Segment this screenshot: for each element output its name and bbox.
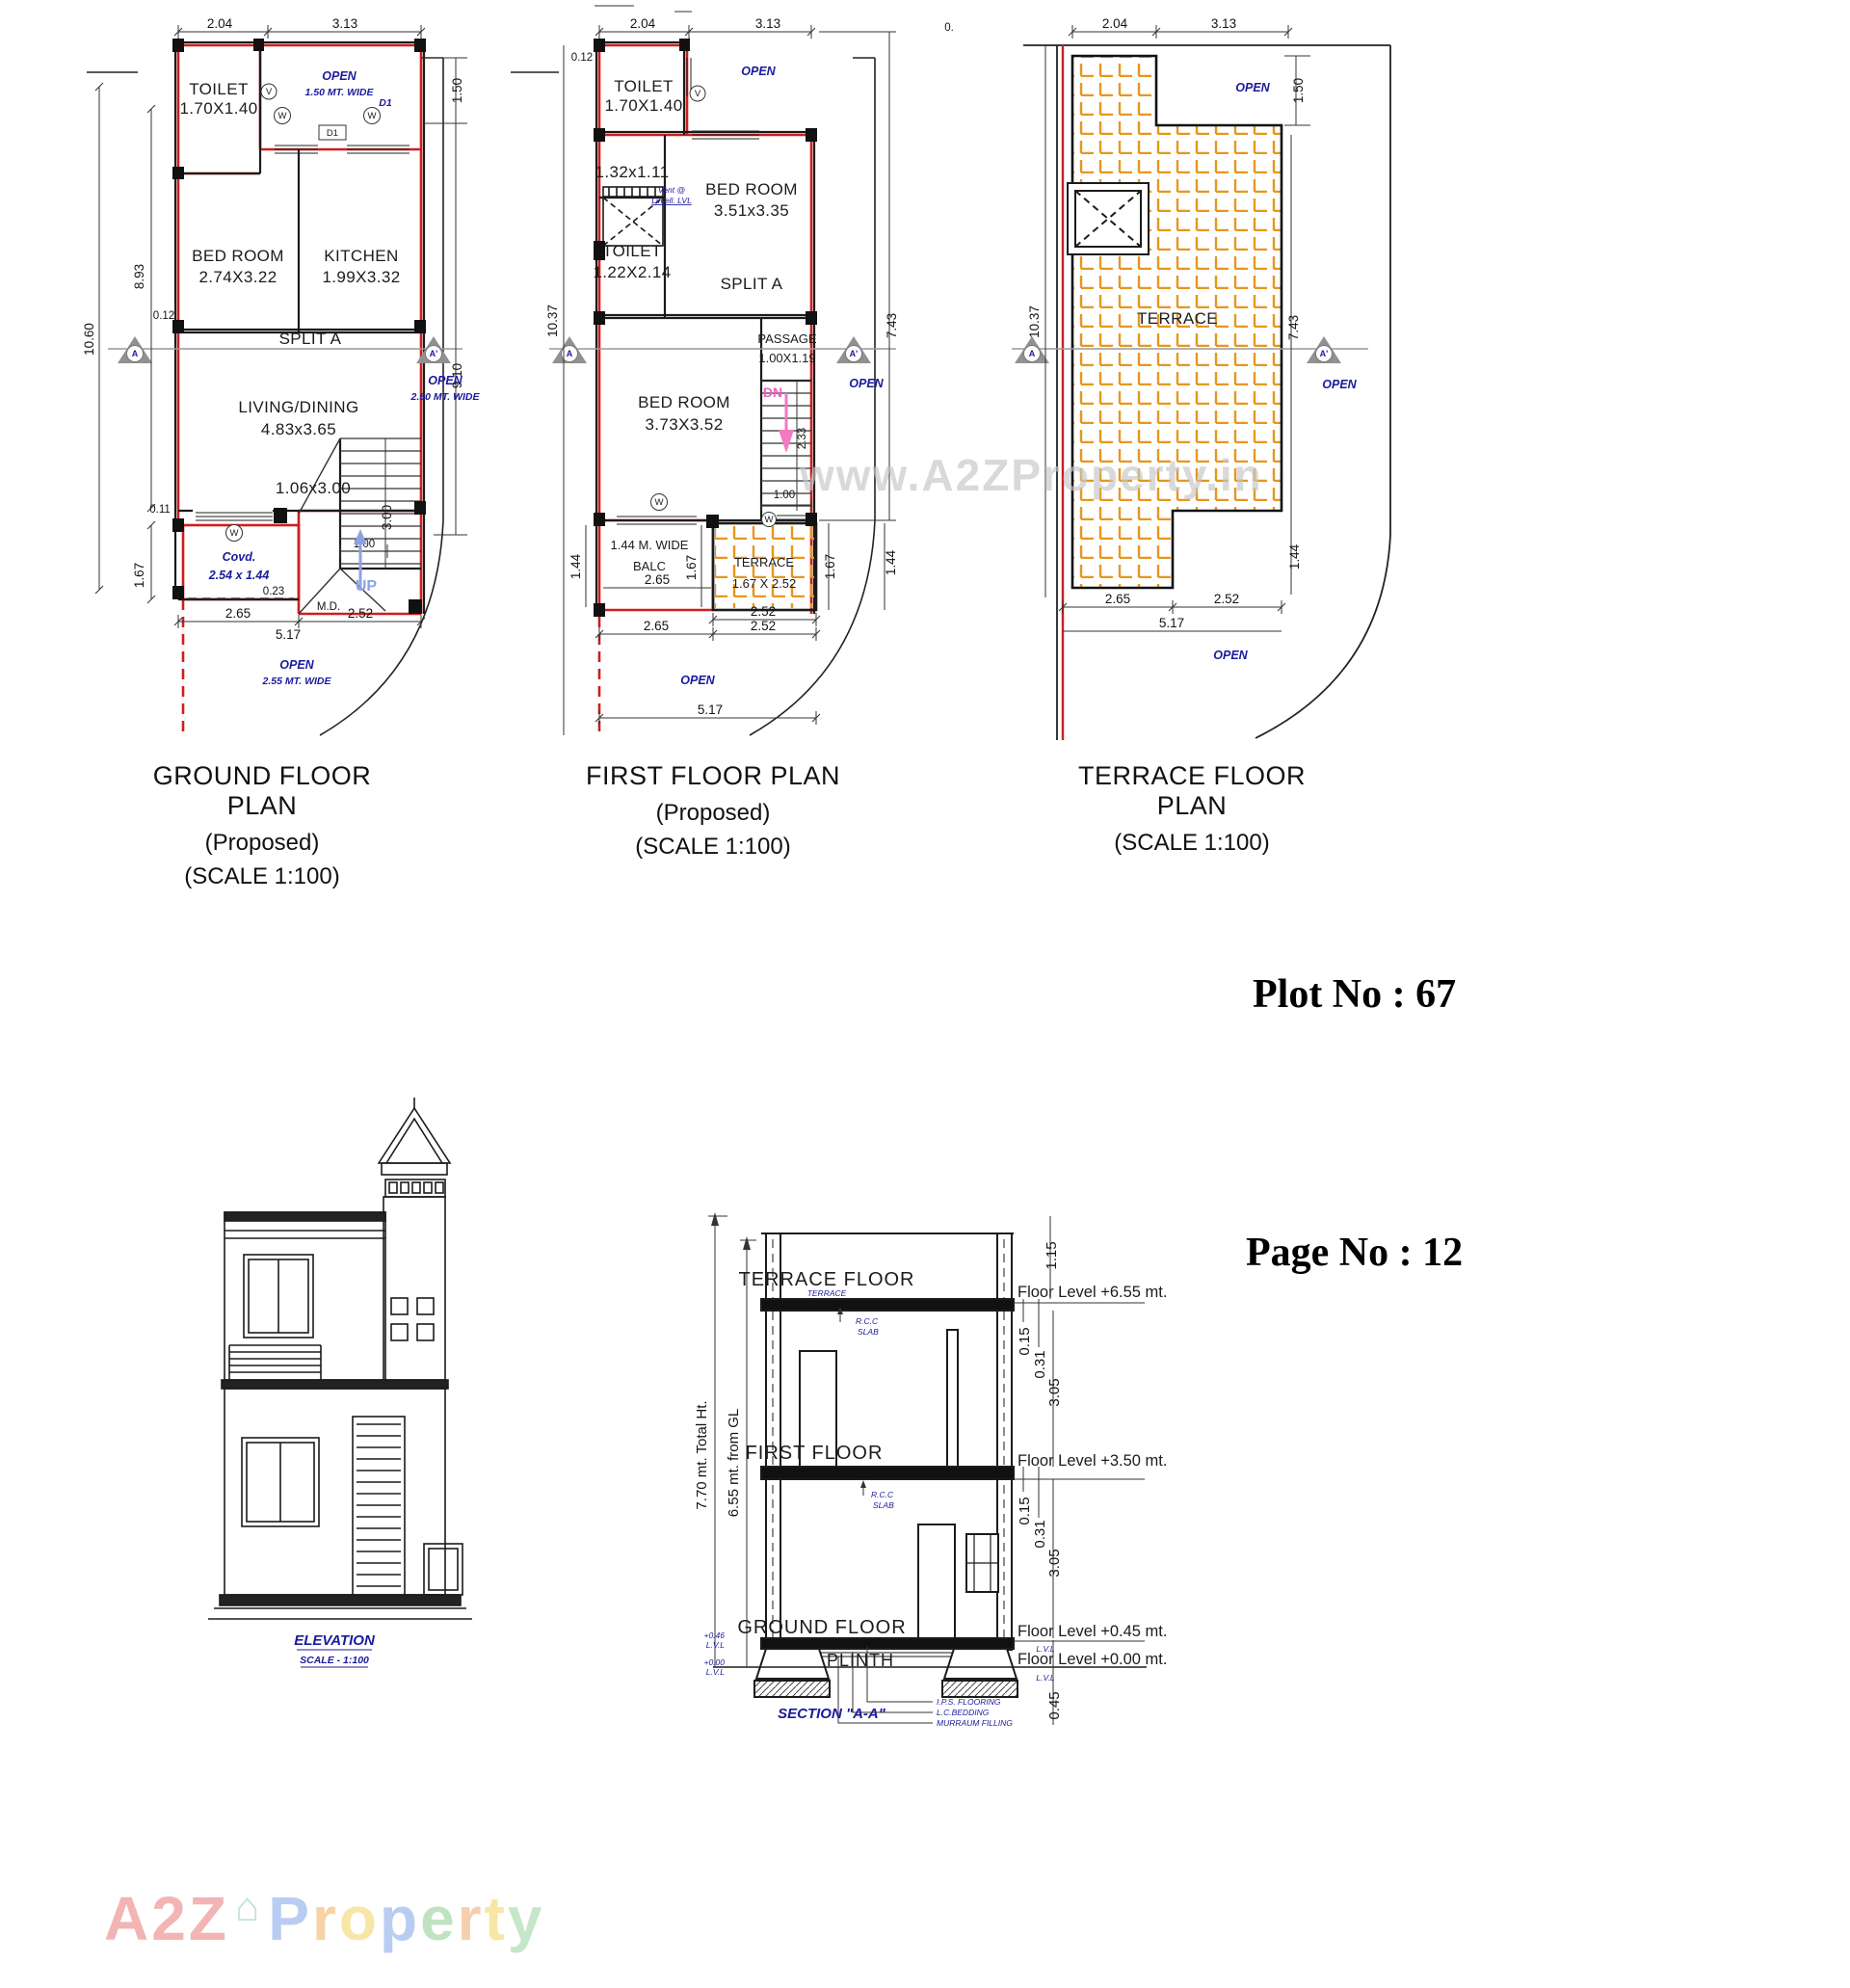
marker-label: A'	[1320, 349, 1329, 358]
level-label: Floor Level +6.55 mt.	[1017, 1284, 1167, 1301]
window-mark: W	[368, 111, 377, 121]
room-size: 3.73X3.52	[645, 415, 723, 434]
open-label: OPEN	[680, 674, 715, 687]
room-label: BED ROOM	[192, 247, 284, 265]
open-label: OPEN	[428, 374, 462, 387]
dim-label: 10.60	[82, 323, 96, 356]
room-size: 3.51x3.35	[714, 201, 789, 220]
fixture-marks: V W W W D1	[226, 84, 381, 542]
dim-label: 0.31	[1032, 1350, 1048, 1378]
note-label: SLAB	[858, 1327, 879, 1337]
dim-label: 1.67	[684, 555, 699, 580]
terrace-floor-title-block: TERRACE FLOOR PLAN (SCALE 1:100)	[1052, 761, 1332, 857]
open-label: 1.50 MT. WIDE	[305, 87, 375, 98]
dim-label: 0.45	[1046, 1691, 1063, 1719]
brand-letter: e	[420, 1884, 458, 1953]
note-label: MURRAUM FILLING	[937, 1718, 1013, 1728]
dim-label: 3.00	[380, 505, 394, 530]
open-label: OPEN	[1235, 81, 1270, 94]
dim-label: 5.17	[1159, 616, 1184, 630]
dim-label: 2.65	[645, 572, 670, 587]
room-label: LIVING/DINING	[238, 398, 358, 416]
open-label: OPEN	[741, 65, 776, 78]
dim-label: 1.44	[1287, 543, 1302, 570]
dim-label: 5.17	[276, 627, 301, 642]
room-label: PASSAGE	[757, 331, 817, 346]
room-size: 1.32x1.11	[595, 163, 669, 181]
room-label: BALC	[633, 559, 666, 573]
brand-letter: P	[268, 1884, 312, 1953]
plan-scale: (SCALE 1:100)	[1052, 830, 1332, 857]
room-label: TOILET	[602, 242, 662, 260]
marker-label: A'	[850, 349, 859, 358]
note-label: R.C.C	[856, 1316, 879, 1326]
ground-floor-plan: A A' 2.04 3.13 TOILET 1.70X1.40 OPEN	[82, 16, 480, 735]
first-floor-title-block: FIRST FLOOR PLAN (Proposed) (SCALE 1:100…	[573, 761, 853, 861]
open-label: OPEN	[1322, 378, 1357, 391]
dim-label: 10.37	[545, 305, 560, 337]
room-size: 1.67 X 2.52	[732, 576, 797, 591]
dim-label: 3.05	[1046, 1378, 1063, 1406]
dim-label: 0.15	[1017, 1327, 1033, 1355]
plan-title: FIRST FLOOR PLAN	[573, 761, 853, 791]
section-marker-a-prime: A'	[1307, 336, 1341, 363]
open-label: 2.55 MT. WIDE	[262, 676, 332, 687]
plan-scale: (SCALE 1:100)	[573, 834, 853, 861]
marker-label: A	[567, 349, 573, 358]
open-label: OPEN	[1213, 649, 1248, 662]
plan-scale: (SCALE 1:100)	[122, 863, 402, 890]
room-size: 1.99X3.32	[322, 268, 400, 286]
dim-label: 3.13	[755, 16, 780, 31]
stair-treads	[340, 438, 421, 564]
dim-label: 0.12	[571, 52, 593, 64]
dim-label: 0.11	[149, 504, 171, 516]
plan-title: GROUND FLOOR PLAN	[122, 761, 402, 821]
note-label: L.V.L	[706, 1667, 725, 1677]
room-label: KITCHEN	[324, 247, 398, 265]
dim-label: 2.04	[630, 16, 656, 31]
room-label: TOILET	[189, 80, 249, 98]
dim-label: 1.44	[884, 549, 898, 575]
floor-label: FIRST FLOOR	[746, 1443, 884, 1464]
center-watermark: www.A2ZProperty.in	[800, 449, 1263, 501]
note-label: TERRACE	[807, 1288, 847, 1298]
level-label: Floor Level +0.45 mt.	[1017, 1623, 1167, 1640]
drawing-title: ELEVATION	[294, 1632, 376, 1649]
dim-label: 0.31	[1032, 1520, 1048, 1548]
dim-label: 2.65	[644, 619, 669, 633]
dim-label: 5.17	[698, 702, 723, 717]
floor-label: GROUND FLOOR	[737, 1617, 906, 1638]
room-label: TERRACE	[1137, 309, 1218, 328]
dim-label: 7.70 mt. Total Ht.	[694, 1400, 710, 1509]
room-size: 1.70X1.40	[604, 96, 682, 115]
up-label: UP	[356, 578, 378, 595]
note-label: I.P.S. FLOORING	[937, 1697, 1001, 1707]
dn-arrow	[779, 393, 794, 453]
window-mark: W	[278, 111, 287, 121]
note-label: L.V.L	[1036, 1644, 1054, 1654]
drawing-sheet: 0.	[0, 0, 1850, 1988]
brand-letter: o	[339, 1884, 380, 1953]
dim-label: 0.12	[153, 310, 174, 322]
dim-label: 7.43	[885, 313, 899, 338]
brand-letter: t	[485, 1884, 508, 1953]
window-mark: W	[765, 515, 774, 525]
section-marker-a-prime: A'	[836, 336, 871, 363]
brand-a2z: A2Z	[104, 1884, 229, 1953]
dim-label: 6.55 mt. from GL	[726, 1409, 742, 1518]
marker-label: A	[132, 349, 139, 358]
open-label: OPEN	[322, 69, 357, 83]
room-label: TERRACE	[734, 555, 794, 570]
section-marker-a: A	[1015, 336, 1049, 363]
marker-label: A'	[430, 349, 438, 358]
note-label: +0.00	[703, 1657, 725, 1667]
plan-subtitle: (Proposed)	[573, 800, 853, 827]
plot-number: Plot No : 67	[1253, 971, 1456, 1018]
note-label: +0.46	[703, 1630, 725, 1640]
stair-size: 1.06x3.00	[276, 479, 351, 497]
terrace-floor-plan: A A' 2.04 3.13 OPEN 1.50 TERRACE 10.37 7…	[1012, 16, 1390, 740]
section-drawing: TERRACE FLOOR TERRACE R.C.C SLAB FIRST F…	[694, 1212, 1167, 1728]
dim-label: 10.37	[1027, 305, 1042, 338]
note-label: L.V.L	[1036, 1673, 1054, 1683]
fragment-text: 0.	[944, 22, 954, 34]
dim-label: 2.52	[348, 606, 373, 621]
room-label: Covd.	[223, 550, 256, 564]
dim-label: 3.05	[1046, 1549, 1063, 1577]
plot-boundary	[87, 58, 443, 735]
dim-label: 1.67	[823, 554, 837, 579]
open-label: OPEN	[849, 377, 884, 390]
fixture-marks: V W W	[651, 86, 777, 527]
dim-label: 8.93	[132, 264, 146, 289]
arrowhead	[860, 1480, 866, 1488]
note-label: Vent @	[658, 185, 686, 195]
dim-label: 0.15	[1017, 1497, 1033, 1524]
brand-letter: r	[312, 1884, 339, 1953]
dim-label: 1.50	[450, 78, 464, 103]
dim-label: 1.67	[132, 563, 146, 588]
dim-label: 1.00	[774, 490, 795, 501]
dim-label: 2.04	[1102, 16, 1128, 31]
dim-label: 2.33	[797, 428, 808, 449]
section-marker-a: A	[552, 336, 587, 363]
room-label: 1.44 M. WIDE	[611, 538, 689, 552]
room-size: 2.74X3.22	[198, 268, 277, 286]
door-mark: D1	[327, 128, 338, 139]
open-label: OPEN	[279, 658, 314, 672]
brand-letter: r	[458, 1884, 485, 1953]
open-label: 2.50 MT. WIDE	[410, 391, 481, 403]
door-label: M.D.	[317, 601, 340, 613]
note-label: L.C.BEDDING	[937, 1708, 990, 1717]
level-label: Floor Level +3.50 mt.	[1017, 1452, 1167, 1470]
ground-floor-title-block: GROUND FLOOR PLAN (Proposed) (SCALE 1:10…	[122, 761, 402, 890]
dim-label: 7.43	[1286, 315, 1301, 340]
room-label: BED ROOM	[638, 393, 730, 411]
dim-label: 1.44	[568, 553, 583, 579]
dim-label: 2.52	[751, 619, 776, 633]
room-label: TOILET	[614, 77, 674, 95]
drawing-scale: SCALE - 1:100	[300, 1655, 369, 1666]
room-label: SPLIT A	[721, 275, 783, 293]
dim-label: 1.15	[1044, 1241, 1060, 1269]
floor-label: PLINTH	[827, 1651, 894, 1670]
dim-label: 3.13	[332, 16, 357, 31]
page-number: Page No : 12	[1246, 1230, 1463, 1276]
note-label: R.C.C	[871, 1490, 894, 1499]
elevation-drawing: ELEVATION SCALE - 1:100	[208, 1098, 472, 1667]
dim-label: 1.50	[1291, 78, 1306, 103]
brand-letter: p	[380, 1884, 420, 1953]
vent-mark: V	[695, 89, 701, 99]
section-marker-a: A	[118, 336, 152, 363]
dim-label: 2.52	[751, 604, 776, 619]
vent-mark: V	[266, 87, 273, 97]
house-icon: ⌂	[235, 1884, 262, 1929]
room-size: 1.70X1.40	[179, 99, 257, 118]
dim-label: 2.65	[225, 606, 251, 621]
note-label: SLAB	[873, 1500, 894, 1510]
note-label: Lintell. LVL	[651, 196, 692, 205]
note-label: L.V.L	[706, 1640, 725, 1650]
drawing-title: SECTION "A-A"	[778, 1706, 886, 1722]
dn-label: DN	[763, 384, 782, 400]
marker-label: A	[1029, 349, 1036, 358]
dim-label: 2.52	[1214, 592, 1239, 606]
brand-watermark: A2Z⌂Property	[104, 1883, 544, 1954]
room-size: 1.22X2.14	[593, 263, 671, 281]
tank-box	[1068, 183, 1149, 254]
plan-subtitle: (Proposed)	[122, 830, 402, 857]
window-mark: W	[655, 497, 664, 508]
room-size: 1.00X1.19	[758, 351, 815, 365]
dim-label: 2.04	[207, 16, 233, 31]
floor-label: TERRACE FLOOR	[738, 1269, 914, 1290]
room-size: 4.83x3.65	[261, 420, 336, 438]
brand-letter: y	[508, 1884, 545, 1953]
room-label: SPLIT A	[279, 330, 342, 348]
first-floor-plan: A A' 2.04 3.13 0.12 TOILET 1.70X1.40 OPE…	[511, 16, 899, 735]
plan-title: TERRACE FLOOR PLAN	[1052, 761, 1332, 821]
dim-label: 2.65	[1105, 592, 1130, 606]
room-size: 2.54 x 1.44	[208, 569, 270, 582]
arrowhead	[743, 1236, 751, 1250]
dim-label: 3.13	[1211, 16, 1236, 31]
window-mark: W	[230, 528, 239, 539]
arrowhead	[711, 1212, 719, 1226]
door-label: D1	[379, 97, 392, 109]
room-label: BED ROOM	[705, 180, 798, 199]
dim-label: 0.23	[263, 586, 284, 597]
